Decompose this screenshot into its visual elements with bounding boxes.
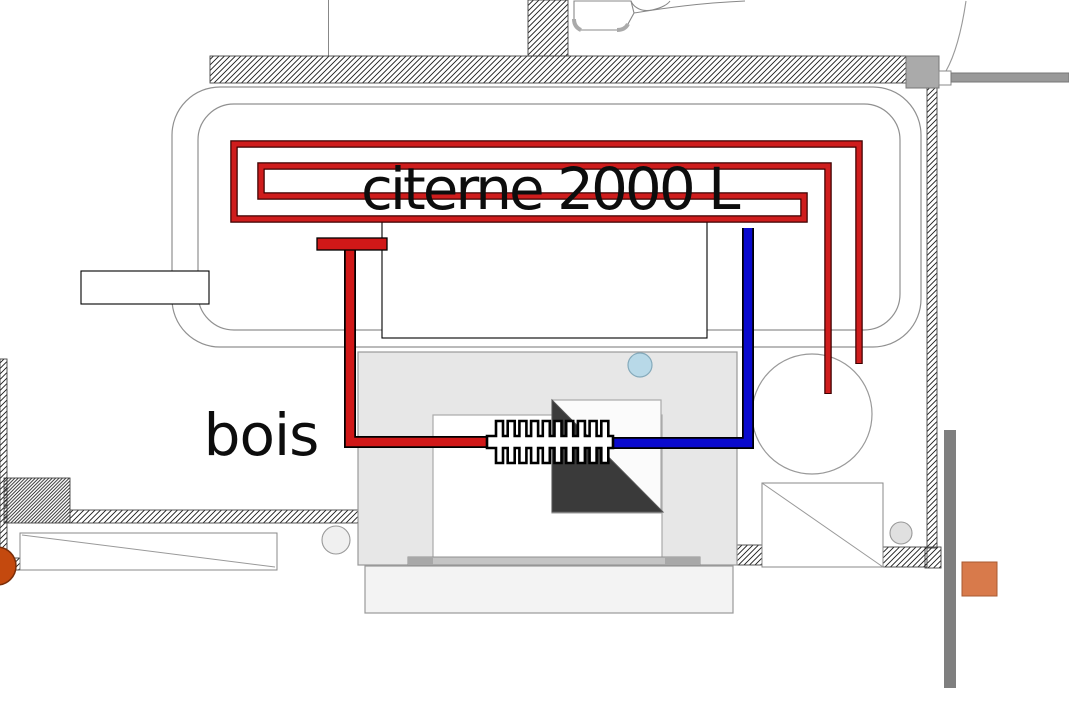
plan-drawing [0,0,1069,703]
wall-top [210,56,906,83]
wall-left-pier [4,478,70,523]
port-circle [628,353,652,377]
boiler-circle [752,354,872,474]
hearth-bar-end-left [408,557,433,565]
gray-circle-right [890,522,912,544]
floor-plan-canvas: citerne 2000 L bois [0,0,1069,703]
tank-side-box [81,271,209,304]
wall-right [927,88,937,548]
wall-chimney-top [528,0,568,56]
wall-left-horizontal [70,510,360,523]
stove-base-slab [365,566,733,613]
equipment-outline-curve [634,1,745,13]
door-hinge-pin [939,71,951,85]
hearth-bar [408,557,700,565]
door-swing-arc [946,1,966,71]
door-leaf [951,73,1069,82]
wood-storage-label: bois [182,399,340,471]
wall-left-strip [0,359,7,562]
equipment-outline-curve-small [631,1,670,11]
tank-label-box [382,222,707,338]
gray-circle-left [322,526,350,554]
rust-circle [0,547,16,585]
wall-bottom-center [737,545,763,565]
hot-pipe-cap [317,238,387,250]
orange-marker-square [962,562,997,596]
tank-label: citerne 2000 L [361,160,738,218]
hearth-bar-end-right [665,557,700,565]
door-hinge-block [906,56,939,88]
side-gray-bar [944,430,956,688]
wall-bottom-right [883,547,927,567]
